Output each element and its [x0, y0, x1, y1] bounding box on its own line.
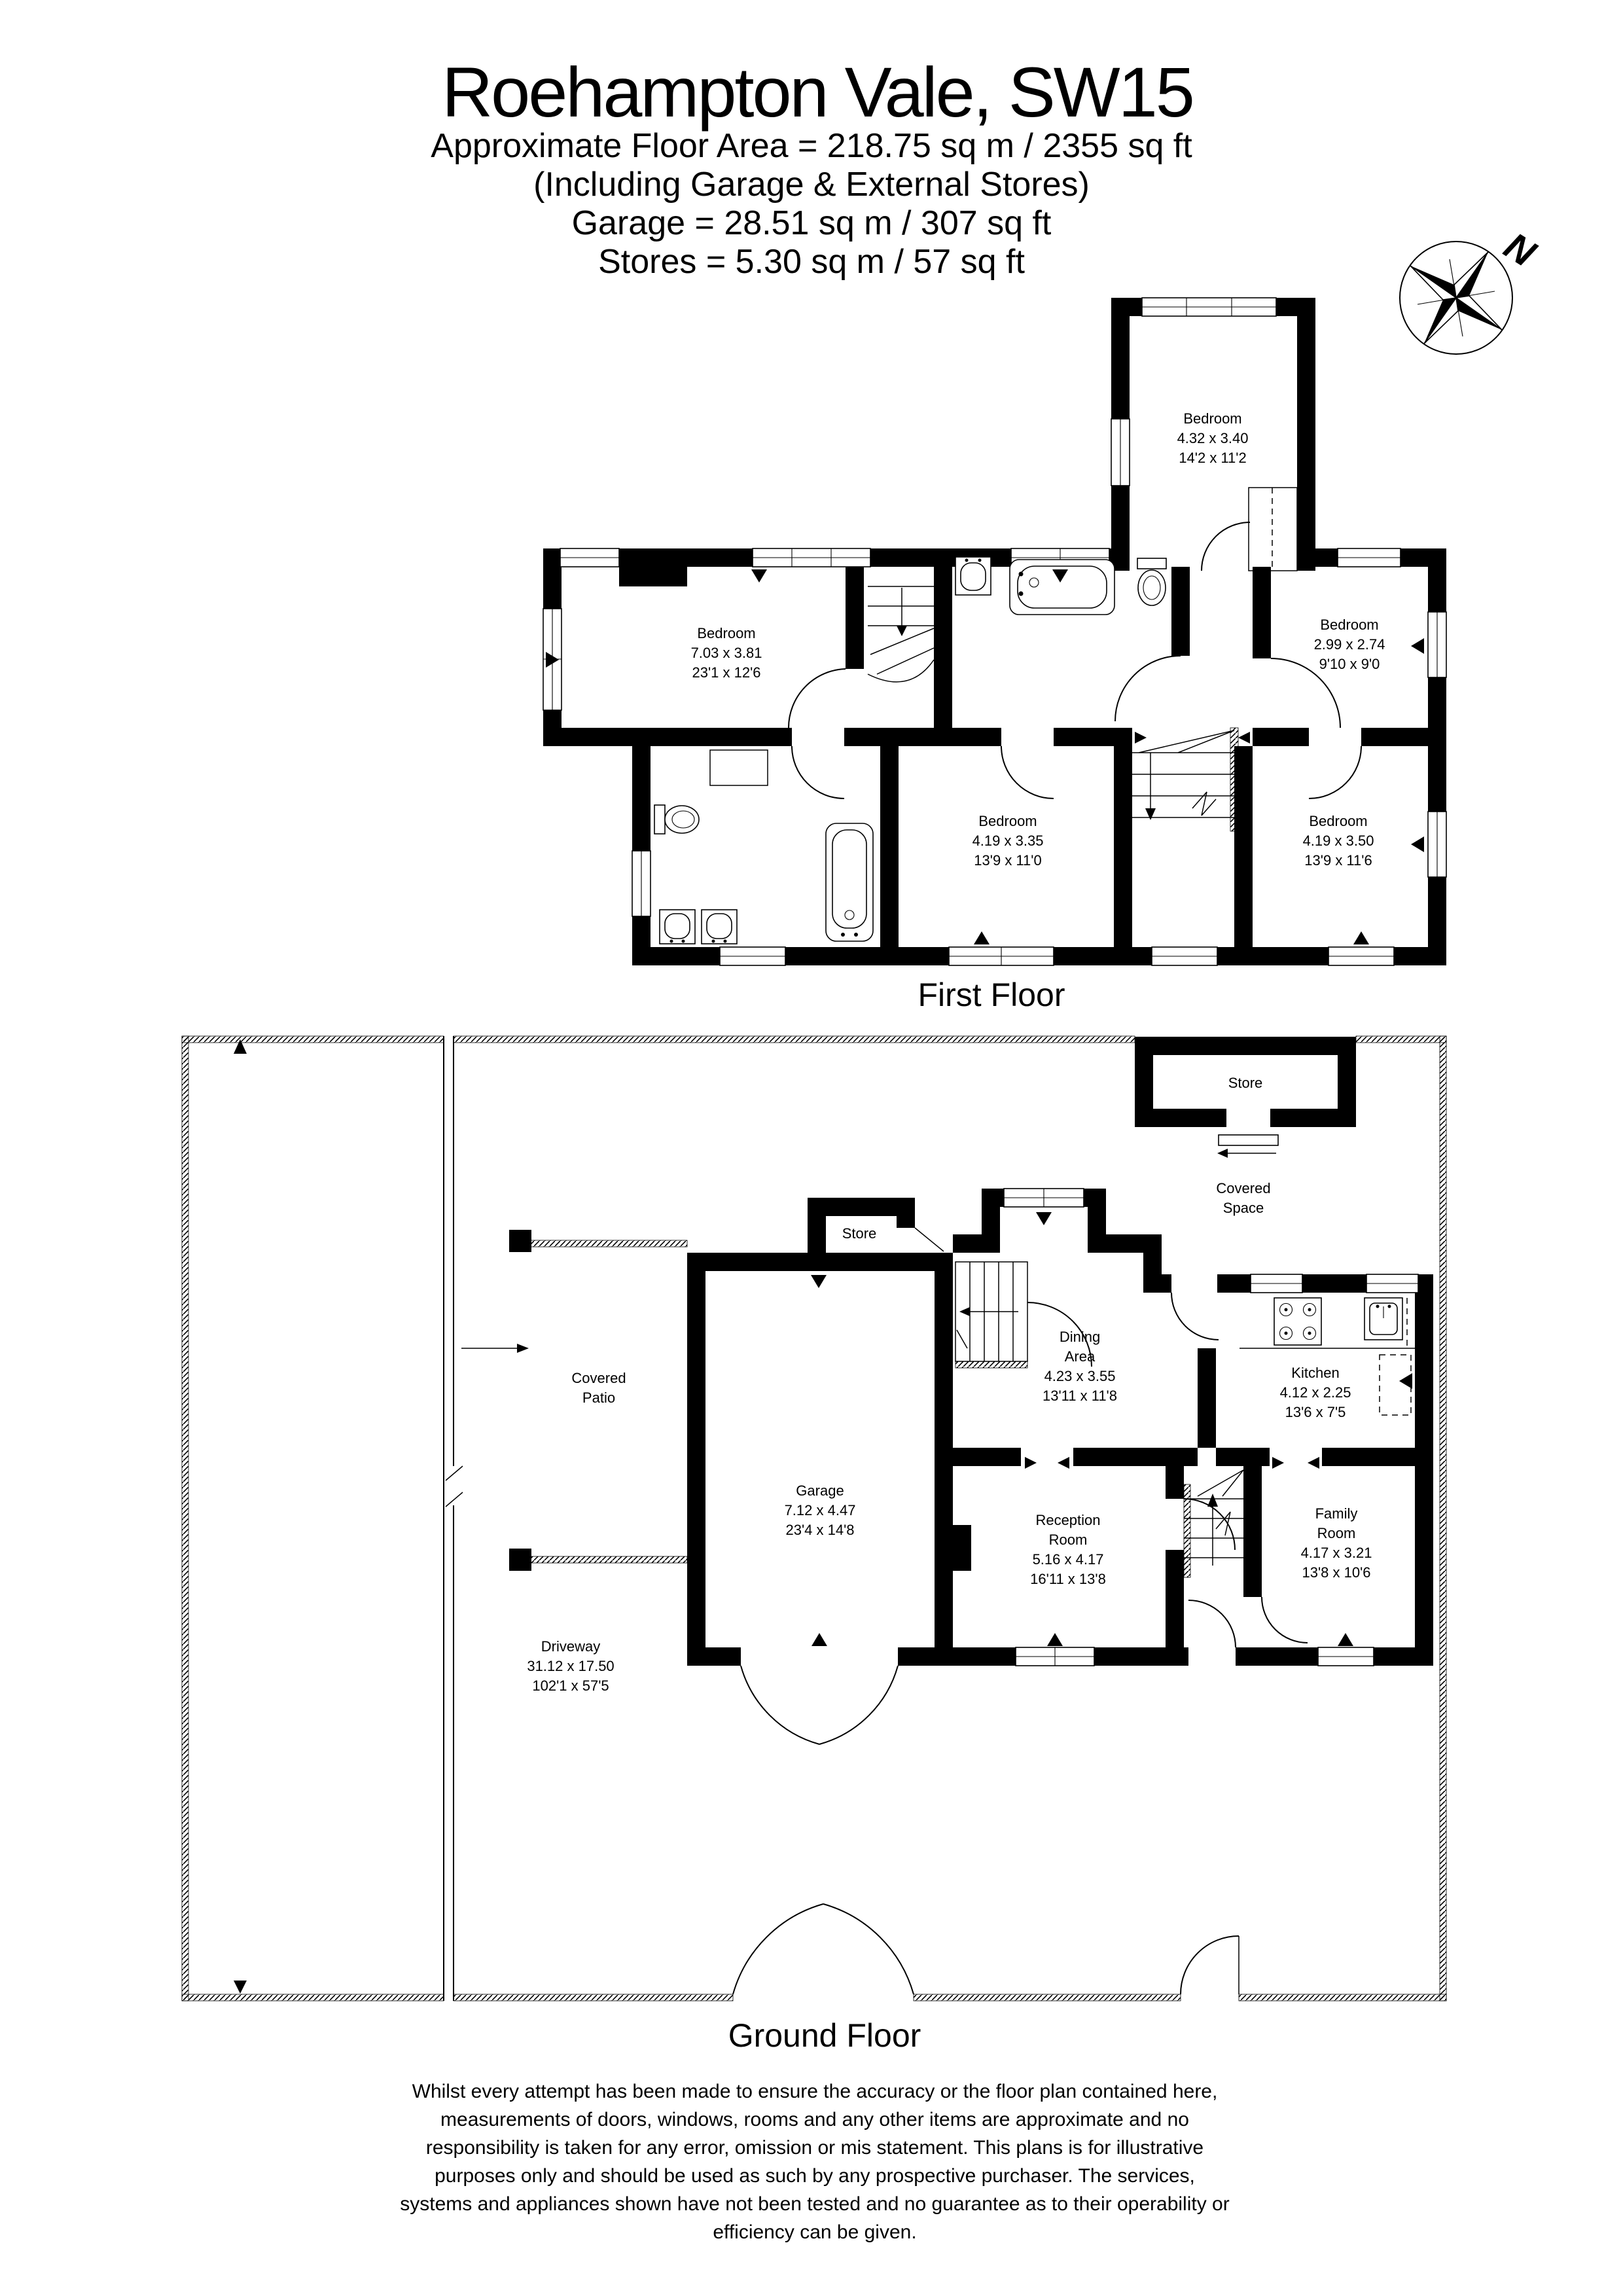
room-label-covered-space: Covered Space	[1216, 1180, 1270, 1216]
room-dim-ft: 102'1 x 57'5	[532, 1677, 609, 1694]
room-label-reception-room: Reception Room 5.16 x 4.17 16'11 x 13'8	[1030, 1512, 1106, 1587]
ensuite-cupboard	[710, 750, 768, 785]
main-stairs-icon	[1132, 728, 1238, 831]
toilet-icon	[1137, 558, 1166, 605]
room-name-line2: Area	[1065, 1348, 1096, 1365]
ensuite-sink-icon	[660, 910, 695, 944]
ground-floor-caption: Ground Floor	[728, 2017, 921, 2054]
room-dim-ft: 13'11 x 11'8	[1043, 1388, 1117, 1404]
room-label-driveway: Driveway 31.12 x 17.50 102'1 x 57'5	[527, 1638, 614, 1694]
bath-icon	[1010, 560, 1115, 615]
room-dim-m: 5.16 x 4.17	[1033, 1551, 1104, 1568]
page-title: Roehampton Vale, SW15	[442, 52, 1193, 132]
room-label-kitchen: Kitchen 4.12 x 2.25 13'6 x 7'5	[1280, 1365, 1351, 1420]
disclaimer-line-6: efficiency can be given.	[713, 2221, 916, 2243]
room-name: Bedroom	[978, 813, 1037, 829]
ensuite-toilet-icon	[654, 805, 699, 834]
hall-stairs-icon	[1184, 1470, 1243, 1577]
room-dim-ft: 16'11 x 13'8	[1030, 1571, 1106, 1587]
room-dim-ft: 13'9 x 11'0	[974, 852, 1041, 869]
disclaimer: Whilst every attempt has been made to en…	[400, 2081, 1230, 2243]
garage-doors	[741, 1666, 898, 1744]
room-dim-m: 2.99 x 2.74	[1314, 636, 1385, 653]
ensuite-bath-icon	[826, 823, 873, 941]
first-floor-plan: Bedroom 4.32 x 3.40 14'2 x 11'2 Bedroom …	[543, 298, 1446, 965]
room-dim-ft: 13'6 x 7'5	[1285, 1404, 1346, 1420]
garage-area-line: Garage = 28.51 sq m / 307 sq ft	[572, 204, 1052, 242]
room-label-family-room: Family Room 4.17 x 3.21 13'8 x 10'6	[1301, 1505, 1372, 1581]
room-label-rear-bedroom: Bedroom 4.32 x 3.40 14'2 x 11'2	[1177, 410, 1249, 466]
room-name: Bedroom	[1183, 410, 1241, 427]
room-dim-m: 7.12 x 4.47	[785, 1502, 856, 1518]
compass-icon: N	[1400, 224, 1543, 354]
store-sliding-door	[1217, 1135, 1278, 1158]
room-dim-m: 4.17 x 3.21	[1301, 1545, 1372, 1561]
room-label-main-bedroom: Bedroom 7.03 x 3.81 23'1 x 12'6	[691, 625, 762, 681]
room-name-line1: Covered	[571, 1370, 626, 1386]
room-label-external-store: Store	[1228, 1075, 1263, 1091]
driveway-gates	[733, 1904, 1239, 1994]
room-name-line2: Patio	[582, 1390, 615, 1406]
room-name: Bedroom	[1309, 813, 1367, 829]
sink-icon	[955, 557, 991, 595]
room-dim-m: 4.19 x 3.50	[1303, 833, 1374, 849]
room-dim-ft: 13'9 x 11'6	[1304, 852, 1372, 869]
room-label-small-bedroom: Bedroom 2.99 x 2.74 9'10 x 9'0	[1314, 617, 1385, 672]
floorplan-canvas: Roehampton Vale, SW15 Approximate Floor …	[0, 0, 1623, 2296]
ground-floor-plan: Store Covered Space Store Dining Area 4.…	[182, 1036, 1446, 2001]
room-name: Garage	[796, 1482, 844, 1499]
floor-area-line: Approximate Floor Area = 218.75 sq m / 2…	[431, 127, 1192, 165]
room-label-covered-patio: Covered Patio	[571, 1370, 626, 1406]
room-name: Store	[842, 1225, 877, 1242]
ensuite-sink2-icon	[702, 910, 737, 944]
room-name-line1: Covered	[1216, 1180, 1270, 1196]
room-label-middle-bedroom: Bedroom 4.19 x 3.35 13'9 x 11'0	[972, 813, 1044, 869]
room-dim-m: 4.32 x 3.40	[1177, 430, 1249, 446]
dining-stairs-icon	[955, 1262, 1027, 1368]
room-name-line2: Space	[1223, 1200, 1264, 1216]
disclaimer-line-5: systems and appliances shown have not be…	[400, 2193, 1230, 2215]
including-line: (Including Garage & External Stores)	[533, 166, 1090, 204]
winder-stairs-icon	[868, 586, 934, 682]
room-label-dining-area: Dining Area 4.23 x 3.55 13'11 x 11'8	[1043, 1329, 1117, 1404]
room-name: Bedroom	[697, 625, 755, 641]
room-name: Bedroom	[1320, 617, 1378, 633]
stove-icon	[1274, 1298, 1321, 1345]
room-name-line2: Room	[1049, 1532, 1088, 1548]
stores-area-line: Stores = 5.30 sq m / 57 sq ft	[598, 243, 1025, 281]
room-name-line2: Room	[1317, 1525, 1356, 1541]
room-dim-ft: 9'10 x 9'0	[1319, 656, 1380, 672]
title-block: Roehampton Vale, SW15 Approximate Floor …	[431, 52, 1193, 281]
room-label-internal-store: Store	[842, 1225, 877, 1242]
disclaimer-line-4: purposes only and should be used as such…	[435, 2165, 1195, 2187]
room-dim-ft: 13'8 x 10'6	[1302, 1564, 1370, 1581]
patio-boundary	[461, 1240, 687, 1563]
disclaimer-line-1: Whilst every attempt has been made to en…	[412, 2081, 1218, 2102]
kitchen-sink-icon	[1364, 1298, 1402, 1340]
disclaimer-line-3: responsibility is taken for any error, o…	[426, 2137, 1204, 2159]
room-dim-ft: 23'4 x 14'8	[785, 1522, 854, 1538]
room-label-right-bedroom: Bedroom 4.19 x 3.50 13'9 x 11'6	[1303, 813, 1374, 869]
room-name-line1: Family	[1315, 1505, 1358, 1522]
room-name-line1: Reception	[1035, 1512, 1100, 1528]
room-dim-m: 31.12 x 17.50	[527, 1658, 614, 1674]
room-dim-m: 4.23 x 3.55	[1044, 1368, 1116, 1384]
room-name-line1: Dining	[1060, 1329, 1100, 1345]
room-dim-ft: 14'2 x 11'2	[1179, 450, 1246, 466]
room-label-garage: Garage 7.12 x 4.47 23'4 x 14'8	[785, 1482, 856, 1538]
first-floor-caption: First Floor	[918, 977, 1065, 1013]
room-dim-m: 4.19 x 3.35	[972, 833, 1044, 849]
room-name: Driveway	[541, 1638, 600, 1655]
disclaimer-line-2: measurements of doors, windows, rooms an…	[440, 2109, 1189, 2130]
room-dim-m: 7.03 x 3.81	[691, 645, 762, 661]
first-floor-doors	[789, 488, 1361, 798]
first-floor-measure-arrows	[546, 569, 1424, 944]
ground-floor-walls	[509, 1037, 1433, 1666]
room-dim-ft: 23'1 x 12'6	[692, 664, 760, 681]
room-name: Kitchen	[1291, 1365, 1339, 1381]
room-name: Store	[1228, 1075, 1263, 1091]
room-dim-m: 4.12 x 2.25	[1280, 1384, 1351, 1401]
